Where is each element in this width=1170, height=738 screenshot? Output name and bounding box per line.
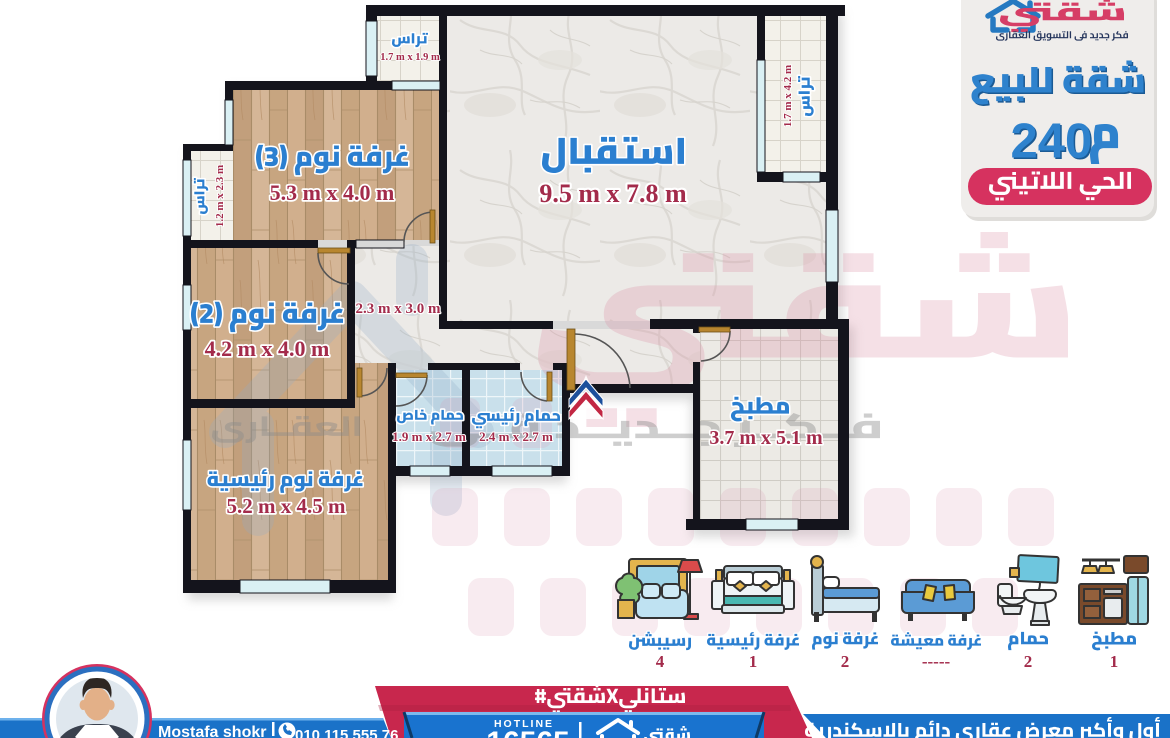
svg-text:Mostafa shokr: Mostafa shokr (158, 724, 266, 738)
svg-text:1.2 m x 2.3 m: 1.2 m x 2.3 m (214, 165, 226, 227)
svg-text:5.2 m x 4.5 m: 5.2 m x 4.5 m (227, 494, 346, 518)
svg-text:2.4 m x 2.7 m: 2.4 m x 2.7 m (479, 429, 553, 444)
svg-text:16565: 16565 (486, 726, 569, 738)
svg-text:1.7 m x 4.2 m: 1.7 m x 4.2 m (782, 65, 794, 127)
svg-text:-----: ----- (922, 652, 951, 671)
svg-text:9.5 m x 7.8 m: 9.5 m x 7.8 m (539, 179, 687, 208)
svg-text:2: 2 (1024, 652, 1033, 671)
svg-text:3.7 m x 5.1 m: 3.7 m x 5.1 m (709, 427, 823, 449)
svg-text:1: 1 (749, 652, 758, 671)
svg-text:1.7 m x 1.9 m: 1.7 m x 1.9 m (380, 52, 440, 63)
svg-text:010 115 555 76: 010 115 555 76 (295, 727, 398, 738)
svg-text:5.3 m x 4.0 m: 5.3 m x 4.0 m (270, 180, 395, 205)
svg-text:1: 1 (1110, 652, 1119, 671)
svg-text:2.3 m x 3.0 m: 2.3 m x 3.0 m (356, 301, 441, 317)
svg-text:2: 2 (841, 652, 850, 671)
svg-text:4: 4 (656, 652, 665, 671)
svg-text:1.9 m x 2.7 m: 1.9 m x 2.7 m (392, 429, 466, 444)
svg-text:4.2 m x 4.0 m: 4.2 m x 4.0 m (205, 336, 330, 361)
svg-text:240: 240 (1011, 115, 1093, 169)
